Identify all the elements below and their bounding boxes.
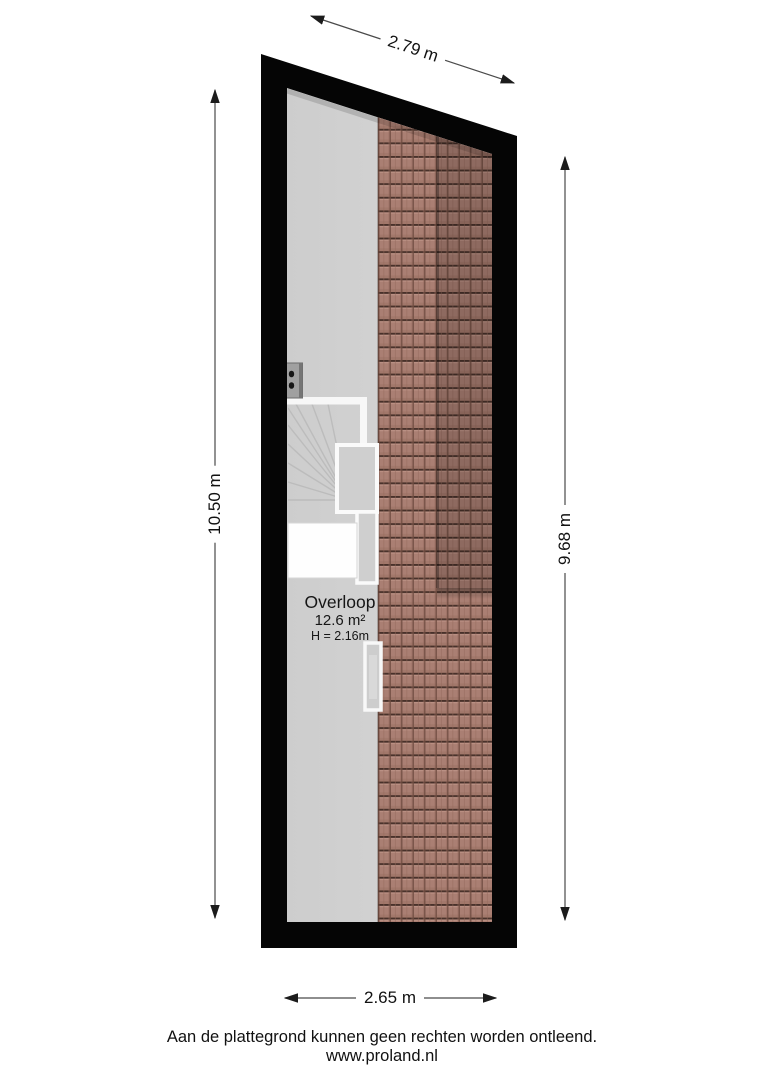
flue-box bbox=[285, 363, 303, 398]
room-interior bbox=[285, 88, 492, 922]
dimension-label-right: 9.68 m bbox=[555, 505, 575, 573]
dimension-label-bottom: 2.65 m bbox=[356, 988, 424, 1008]
floorplan-page: 2.79 m 10.50 m 9.68 m 2.65 m Overloop 12… bbox=[0, 0, 764, 1080]
room-name: Overloop bbox=[304, 593, 375, 612]
room-label: Overloop 12.6 m² H = 2.16m bbox=[304, 593, 375, 644]
footer: Aan de plattegrond kunnen geen rechten w… bbox=[0, 1028, 764, 1066]
stair-stringer-side bbox=[360, 397, 367, 447]
flue-vent-dot bbox=[289, 382, 294, 389]
roof-section-seam bbox=[436, 88, 439, 588]
footer-disclaimer: Aan de plattegrond kunnen geen rechten w… bbox=[0, 1028, 764, 1047]
dimension-label-left: 10.50 m bbox=[205, 465, 225, 542]
room-ceiling-height: H = 2.16m bbox=[304, 629, 375, 644]
floorplan-drawing bbox=[0, 0, 764, 1080]
roof-window bbox=[365, 643, 381, 710]
roof-upper-section bbox=[437, 88, 492, 588]
flue-vent-dot bbox=[289, 371, 294, 378]
stair-lower-flight bbox=[357, 512, 377, 583]
footer-website: www.proland.nl bbox=[0, 1047, 764, 1066]
stairwell-void bbox=[288, 523, 357, 578]
stair-upper-flight bbox=[337, 445, 377, 512]
room-area: 12.6 m² bbox=[304, 612, 375, 629]
roof-section-shadow bbox=[437, 588, 492, 599]
